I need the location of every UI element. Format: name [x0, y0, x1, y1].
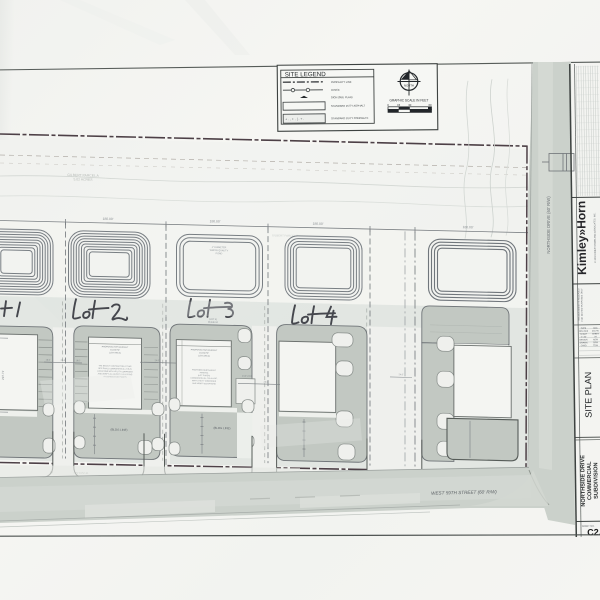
svg-text:JAN 2006: JAN 2006: [579, 330, 589, 333]
svg-text:THIS DOCUMENT IS RELEASED: THIS DOCUMENT IS RELEASED: [577, 288, 580, 322]
svg-text:(LOT AREA): (LOT AREA): [198, 354, 210, 357]
svg-text:SCALE: SCALE: [580, 333, 587, 336]
svg-text:10,150 SF: 10,150 SF: [199, 352, 209, 354]
svg-text:C2.0: C2.0: [587, 527, 600, 537]
svg-text:30: 30: [408, 103, 412, 107]
svg-text:(BLDG LINE): (BLDG LINE): [213, 426, 230, 430]
svg-text:5.02 ACRES: 5.02 ACRES: [73, 177, 93, 181]
svg-text:24.0': 24.0': [155, 360, 160, 362]
svg-text:DRAWN: DRAWN: [580, 341, 588, 344]
svg-text:SHEET: SHEET: [592, 333, 600, 335]
svg-text:10,150 SF: 10,150 SF: [110, 349, 120, 351]
svg-text:(LOT AREA): (LOT AREA): [109, 351, 121, 354]
svg-text:SITE PLAN: SITE PLAN: [583, 372, 594, 418]
svg-text:180.00': 180.00': [210, 219, 221, 223]
svg-text:PROPERTY LINE: PROPERTY LINE: [331, 80, 352, 84]
svg-text:24.0': 24.0': [264, 382, 269, 384]
svg-text:SIGN (SEE PLAN): SIGN (SEE PLAN): [331, 95, 353, 99]
svg-text:180.00': 180.00': [463, 225, 474, 229]
svg-text:15: 15: [397, 103, 401, 107]
svg-text:4" DIAMETER: 4" DIAMETER: [212, 246, 227, 249]
svg-text:FENCE: FENCE: [331, 88, 340, 92]
svg-text:SITE LEGEND: SITE LEGEND: [285, 71, 327, 78]
svg-text:PARKING: PARKING: [200, 371, 209, 374]
svg-text:180.00': 180.00': [103, 217, 114, 221]
svg-text:TDW: TDW: [593, 345, 598, 347]
svg-text:1"=30': 1"=30': [581, 337, 587, 339]
svg-text:Kimley»Horn: Kimley»Horn: [574, 201, 589, 275]
svg-text:NORTH: NORTH: [404, 84, 414, 88]
svg-text:24.0' 24.0': 24.0' 24.0': [242, 376, 253, 378]
svg-text:180.00': 180.00': [313, 222, 324, 226]
svg-text:NORTHSIDE DRIVE (60' R/W): NORTHSIDE DRIVE (60' R/W): [546, 196, 551, 254]
svg-text:DESIGN: DESIGN: [580, 339, 588, 341]
svg-text:KHA: KHA: [593, 327, 598, 330]
svg-text:18.0': 18.0': [76, 360, 81, 362]
svg-text:DATE: DATE: [581, 327, 587, 330]
svg-text:18.0': 18.0': [46, 360, 51, 362]
svg-text:38,536 SF: 38,536 SF: [208, 322, 219, 324]
svg-text:STANDARD DUTY ASPHALT: STANDARD DUTY ASPHALT: [331, 104, 365, 108]
svg-text:+ . , + . | . + .: + . , + . | . + .: [285, 117, 304, 121]
svg-text:60: 60: [428, 103, 432, 107]
svg-text:011770: 011770: [592, 331, 600, 333]
svg-text:297.71': 297.71': [1, 370, 5, 380]
svg-text:SUBDIVISION: SUBDIVISION: [593, 462, 600, 498]
svg-text:AND VERIFY ELEVATIONS: AND VERIFY ELEVATIONS: [192, 382, 216, 386]
svg-text:COMMERCIAL: COMMERCIAL: [587, 461, 594, 500]
svg-text:(LOT 3): (LOT 3): [209, 319, 217, 321]
svg-text:POND: POND: [216, 253, 223, 255]
svg-text:WATER QUALITY: WATER QUALITY: [210, 249, 229, 252]
svg-text:MJW: MJW: [593, 339, 598, 341]
svg-text:(BLDG LINE): (BLDG LINE): [110, 428, 127, 432]
svg-text:24.0': 24.0': [399, 374, 404, 376]
svg-text:CHKD: CHKD: [581, 345, 587, 347]
svg-text:RPM: RPM: [593, 342, 598, 344]
svg-text:24.0': 24.0': [61, 360, 66, 362]
svg-text:STANDARD DUTY CONCRETE: STANDARD DUTY CONCRETE: [331, 116, 368, 120]
